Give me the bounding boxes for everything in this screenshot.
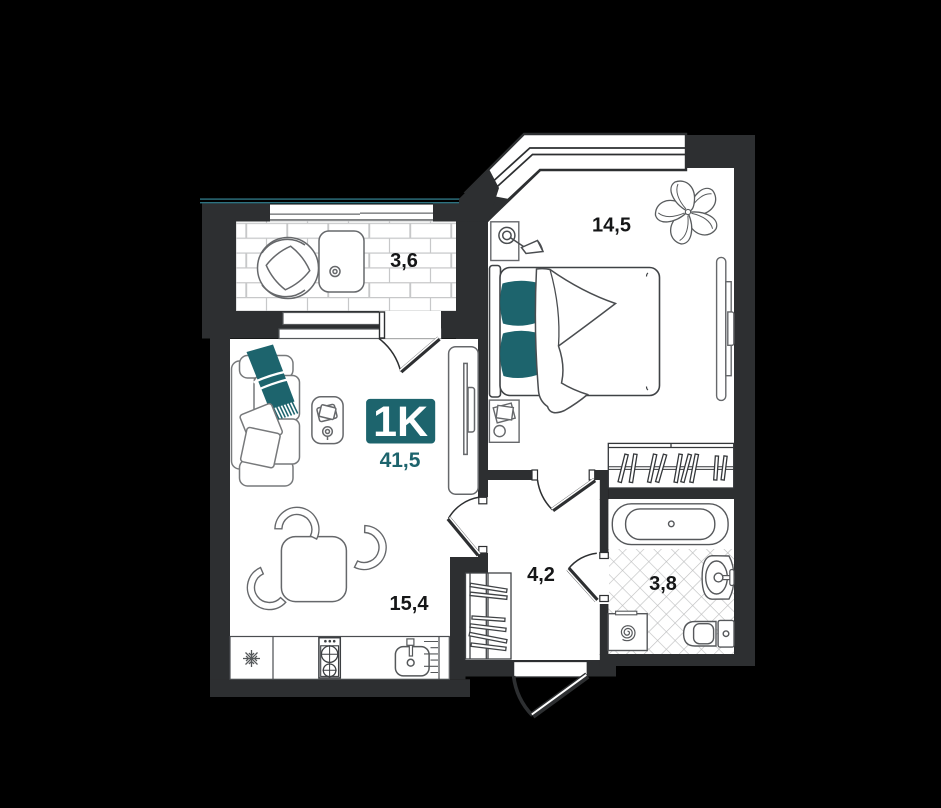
svg-text:4,2: 4,2 — [527, 564, 555, 586]
svg-text:3,8: 3,8 — [649, 573, 677, 595]
svg-text:14,5: 14,5 — [592, 215, 631, 237]
svg-text:1K: 1K — [373, 398, 428, 446]
svg-text:15,4: 15,4 — [390, 593, 430, 615]
svg-text:41,5: 41,5 — [380, 449, 421, 472]
svg-text:3,6: 3,6 — [390, 250, 418, 272]
